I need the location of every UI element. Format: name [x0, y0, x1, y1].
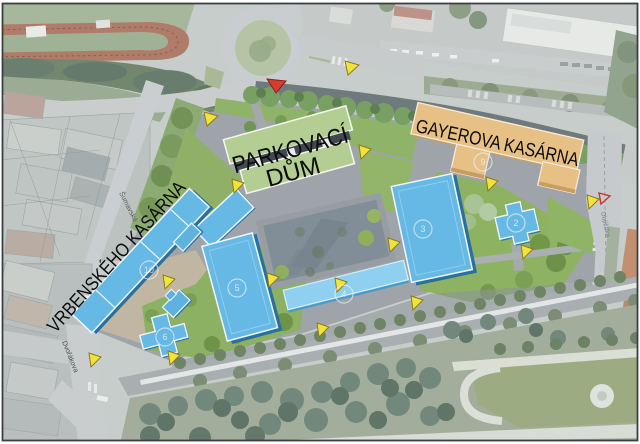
svg-text:2: 2: [513, 218, 518, 228]
svg-text:5: 5: [234, 283, 239, 293]
svg-text:4: 4: [341, 289, 346, 299]
svg-text:6: 6: [162, 332, 167, 342]
svg-text:3: 3: [420, 224, 425, 234]
svg-text:10: 10: [144, 265, 154, 275]
svg-text:9: 9: [480, 157, 485, 167]
